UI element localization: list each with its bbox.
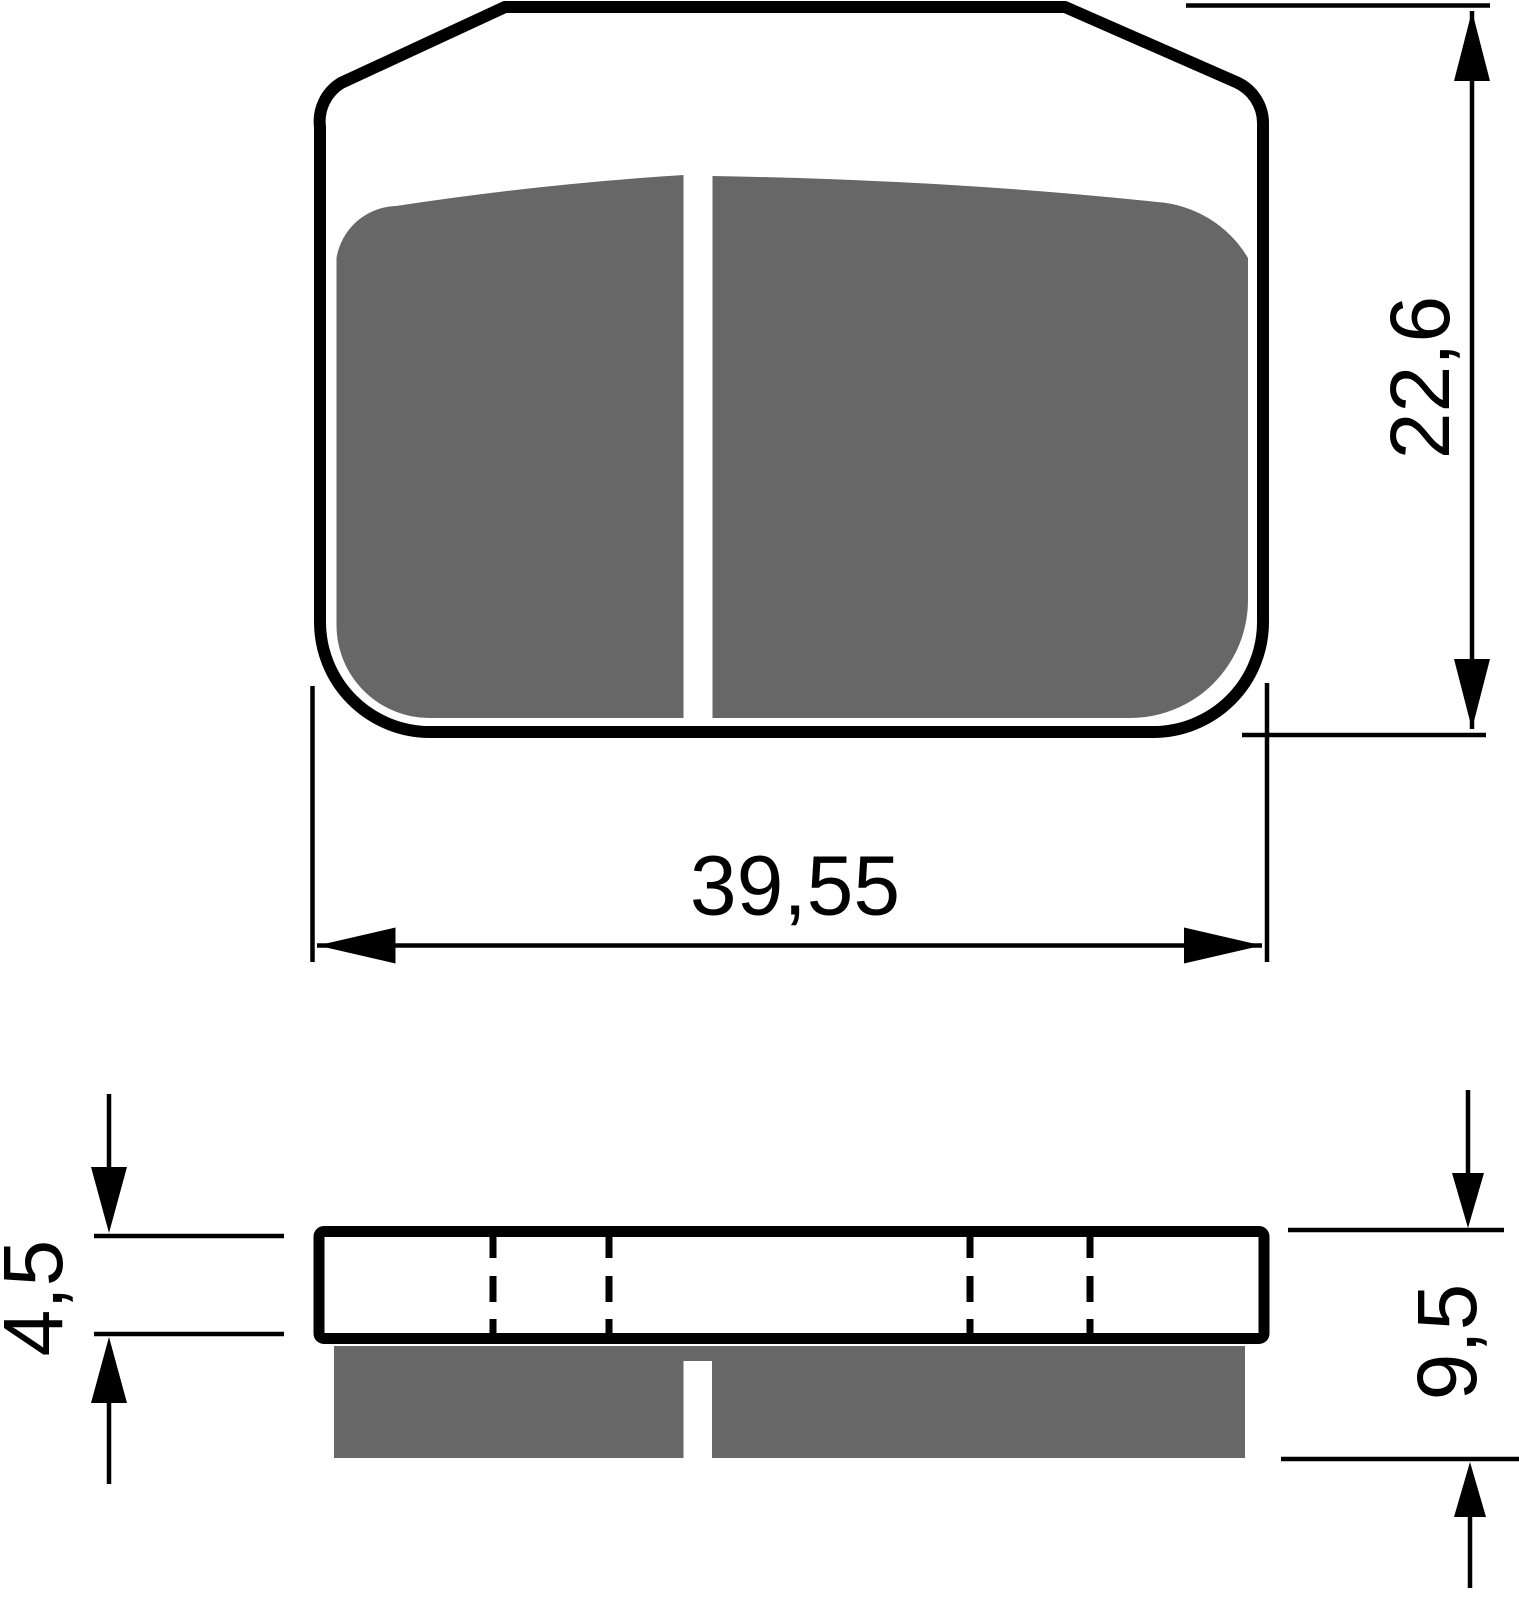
svg-text:9,5: 9,5 — [1400, 1284, 1494, 1401]
svg-text:4,5: 4,5 — [0, 1240, 80, 1357]
svg-text:22,6: 22,6 — [1373, 296, 1467, 460]
svg-text:39,55: 39,55 — [690, 839, 900, 933]
